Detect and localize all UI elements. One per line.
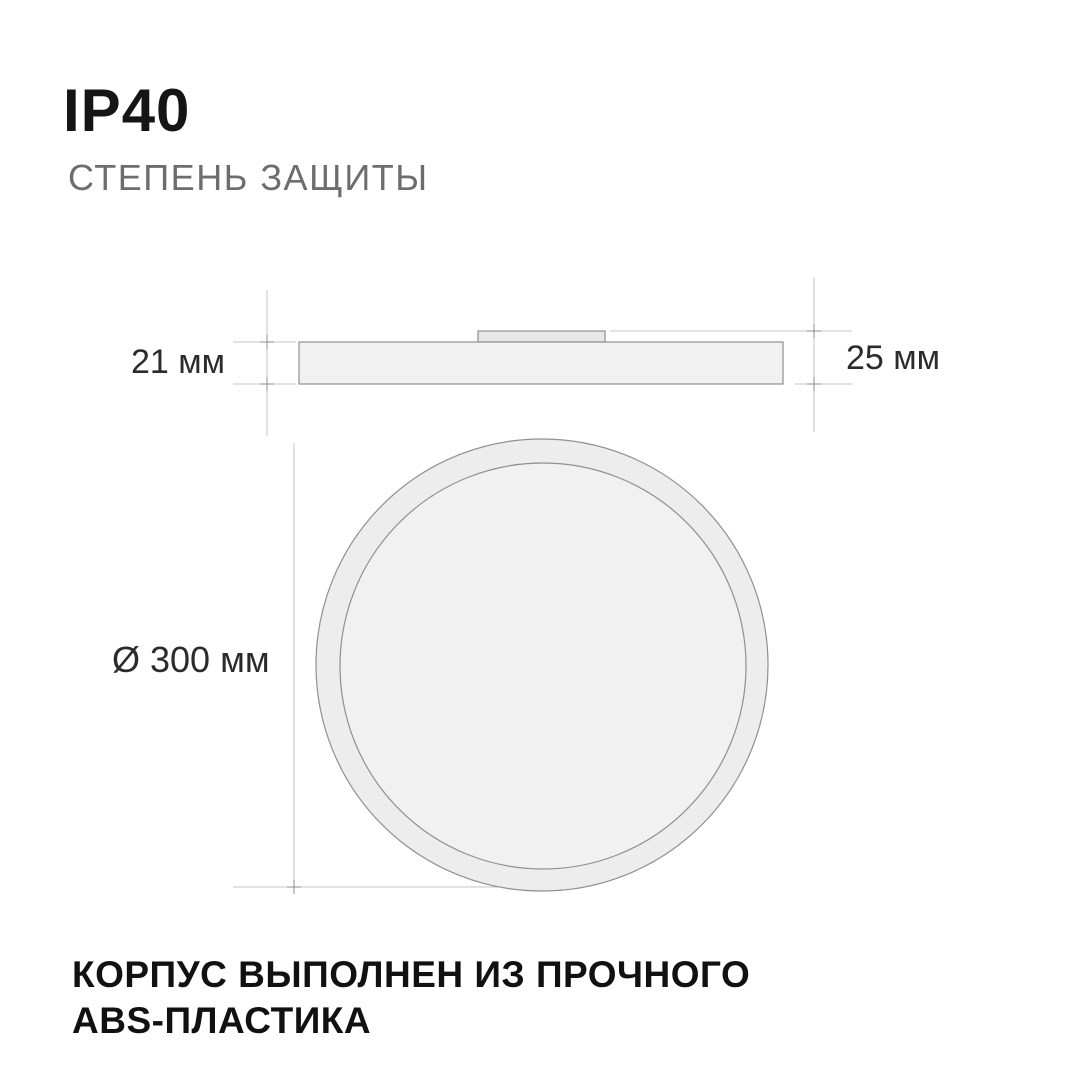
product-infographic: IP40 СТЕПЕНЬ ЗАЩИТЫ (0, 0, 1080, 1080)
lamp-side-view (233, 277, 852, 436)
total-height-label: 25 мм (846, 340, 940, 376)
diameter-label: Ø 300 мм (112, 642, 270, 678)
footer-description: КОРПУС ВЫПОЛНЕН ИЗ ПРОЧНОГО ABS-ПЛАСТИКА (72, 952, 750, 1044)
footer-line-2: ABS-ПЛАСТИКА (72, 998, 750, 1044)
lamp-top-view (233, 439, 768, 894)
footer-line-1: КОРПУС ВЫПОЛНЕН ИЗ ПРОЧНОГО (72, 952, 750, 998)
top-view-tick-crosses (287, 880, 301, 894)
lamp-inner-circle (340, 463, 746, 869)
mount-plate-rect (478, 331, 605, 342)
technical-drawing (0, 0, 1080, 1080)
body-height-label: 21 мм (90, 344, 225, 380)
lamp-body-rect (299, 342, 783, 384)
